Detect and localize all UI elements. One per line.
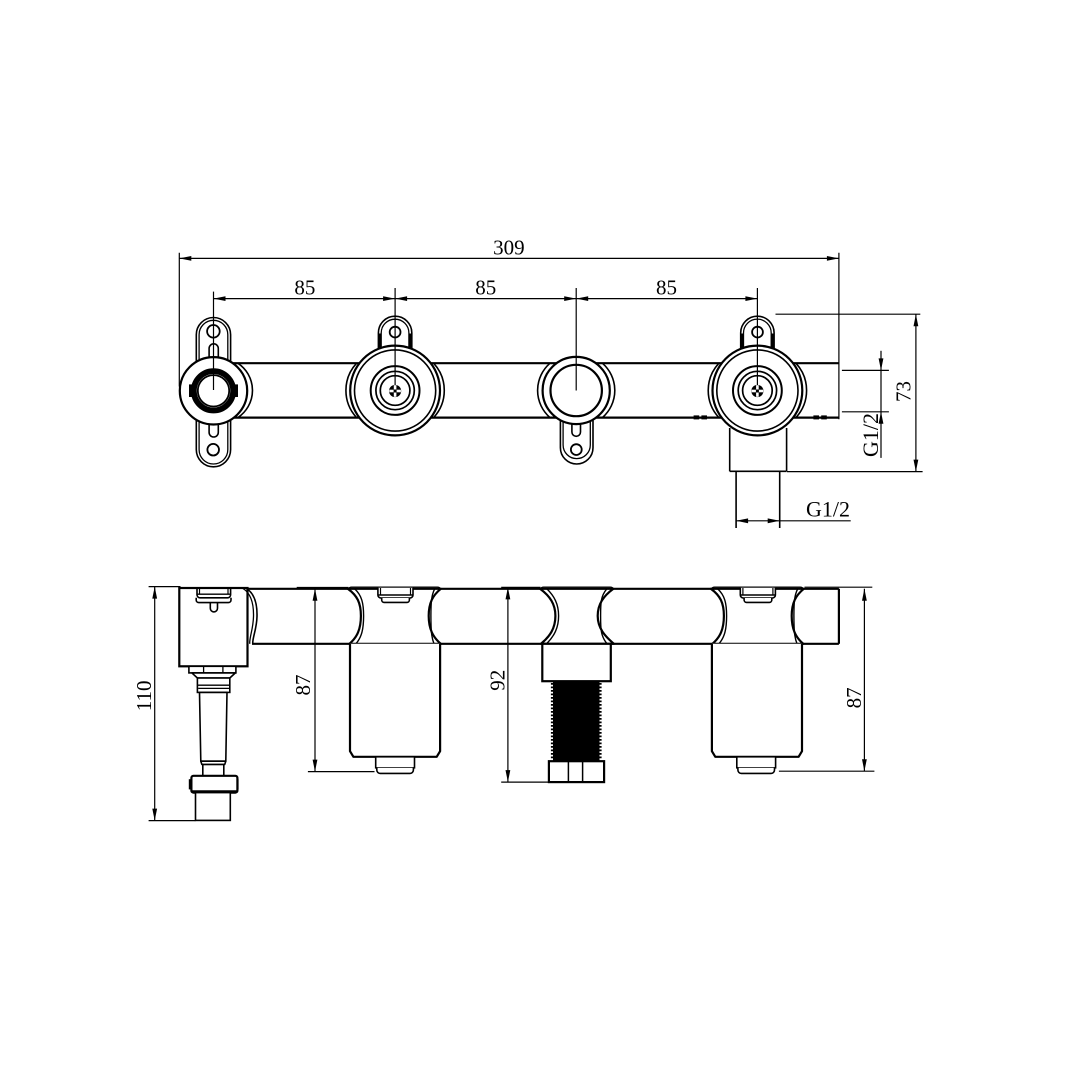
svg-text:309: 309 xyxy=(493,236,525,260)
svg-text:85: 85 xyxy=(656,276,677,300)
svg-text:87: 87 xyxy=(291,675,315,696)
svg-text:87: 87 xyxy=(842,687,866,708)
svg-text:73: 73 xyxy=(892,381,916,402)
svg-text:92: 92 xyxy=(486,670,510,691)
svg-text:G1/2: G1/2 xyxy=(806,496,850,521)
svg-text:110: 110 xyxy=(132,681,156,712)
svg-text:G1/2: G1/2 xyxy=(858,413,883,457)
svg-text:85: 85 xyxy=(294,276,315,300)
svg-text:85: 85 xyxy=(475,276,496,300)
